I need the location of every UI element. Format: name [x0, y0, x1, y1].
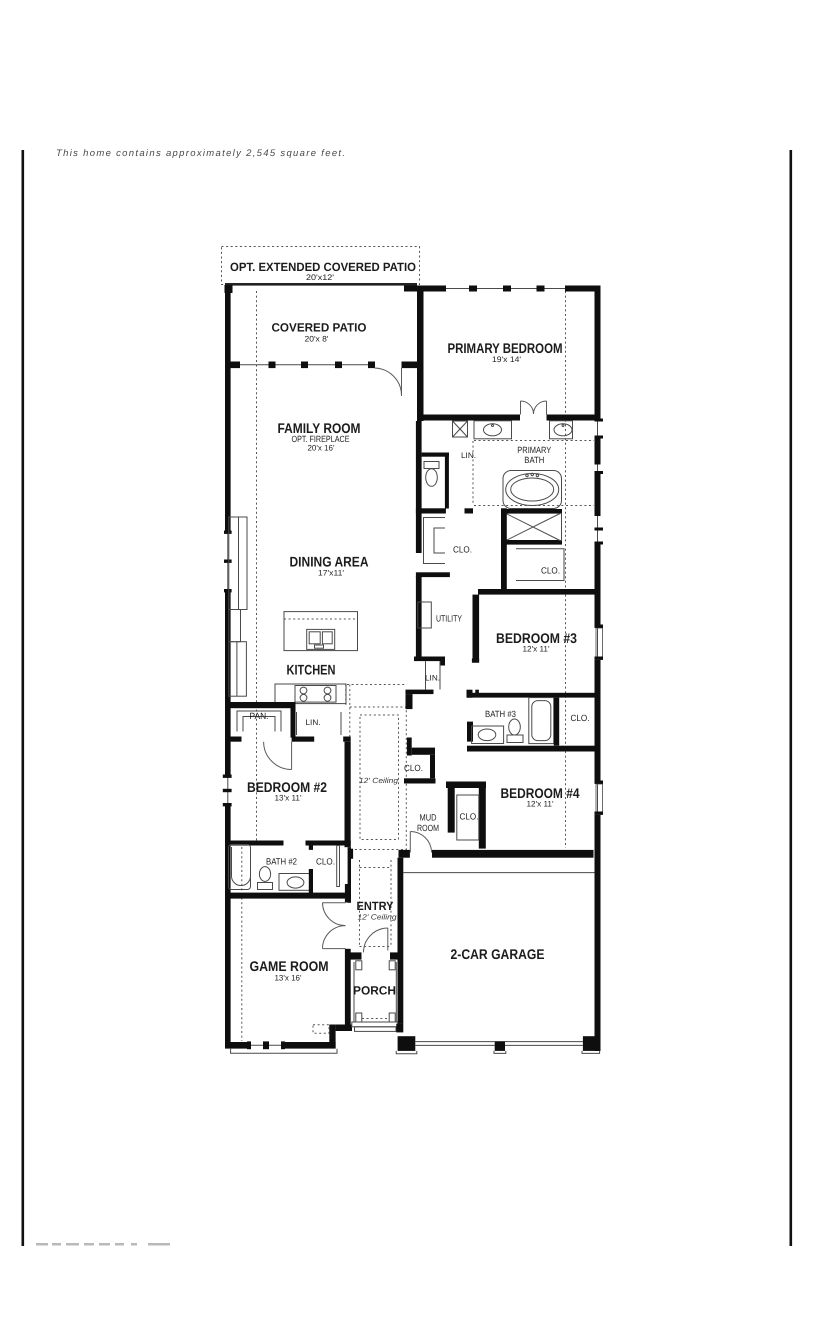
- svg-text:12'x 11': 12'x 11': [527, 800, 554, 809]
- svg-text:PORCH: PORCH: [353, 984, 396, 998]
- svg-text:PAN.: PAN.: [250, 711, 269, 721]
- svg-text:13'x 11': 13'x 11': [275, 794, 302, 803]
- svg-text:CLO.: CLO.: [404, 763, 423, 773]
- svg-text:LIN.: LIN.: [306, 718, 321, 727]
- svg-text:KITCHEN: KITCHEN: [287, 662, 336, 678]
- svg-text:20'x 16': 20'x 16': [308, 444, 335, 453]
- svg-text:BATH #2: BATH #2: [266, 857, 297, 867]
- svg-text:OPT. FIREPLACE: OPT. FIREPLACE: [292, 434, 350, 444]
- svg-text:DINING AREA: DINING AREA: [290, 554, 369, 570]
- svg-text:BATH: BATH: [524, 455, 544, 465]
- svg-text:17'x11': 17'x11': [318, 569, 344, 578]
- svg-text:UTILITY: UTILITY: [436, 614, 462, 624]
- svg-text:ENTRY: ENTRY: [357, 899, 394, 913]
- svg-text:PRIMARY: PRIMARY: [517, 445, 551, 455]
- svg-text:MUD: MUD: [420, 813, 437, 823]
- svg-text:COVERED PATIO: COVERED PATIO: [272, 321, 367, 335]
- svg-text:13'x 16': 13'x 16': [275, 974, 302, 983]
- svg-text:LIN.: LIN.: [425, 674, 440, 683]
- svg-text:CLO.: CLO.: [541, 566, 560, 576]
- svg-text:12' Ceiling: 12' Ceiling: [359, 776, 399, 785]
- svg-text:2-CAR GARAGE: 2-CAR GARAGE: [451, 946, 545, 962]
- svg-text:12'x 11': 12'x 11': [523, 645, 550, 654]
- svg-text:GAME ROOM: GAME ROOM: [250, 958, 329, 974]
- svg-text:CLO.: CLO.: [316, 857, 335, 867]
- svg-text:20'x 8': 20'x 8': [305, 335, 330, 344]
- svg-text:CLO.: CLO.: [571, 713, 590, 723]
- svg-text:CLO.: CLO.: [460, 812, 479, 822]
- svg-text:12' Ceiling: 12' Ceiling: [358, 913, 398, 922]
- svg-text:This home contains approximate: This home contains approximately 2,545 s…: [56, 148, 345, 159]
- svg-text:19'x 14': 19'x 14': [492, 355, 522, 364]
- svg-text:CLO.: CLO.: [453, 545, 472, 555]
- svg-text:OPT. EXTENDED COVERED PATIO: OPT. EXTENDED COVERED PATIO: [230, 260, 416, 274]
- svg-text:PRIMARY BEDROOM: PRIMARY BEDROOM: [448, 340, 563, 356]
- svg-text:20'x12': 20'x12': [306, 273, 335, 282]
- svg-text:BATH #3: BATH #3: [485, 709, 516, 719]
- svg-text:ROOM: ROOM: [417, 823, 439, 833]
- svg-text:LIN.: LIN.: [461, 451, 476, 460]
